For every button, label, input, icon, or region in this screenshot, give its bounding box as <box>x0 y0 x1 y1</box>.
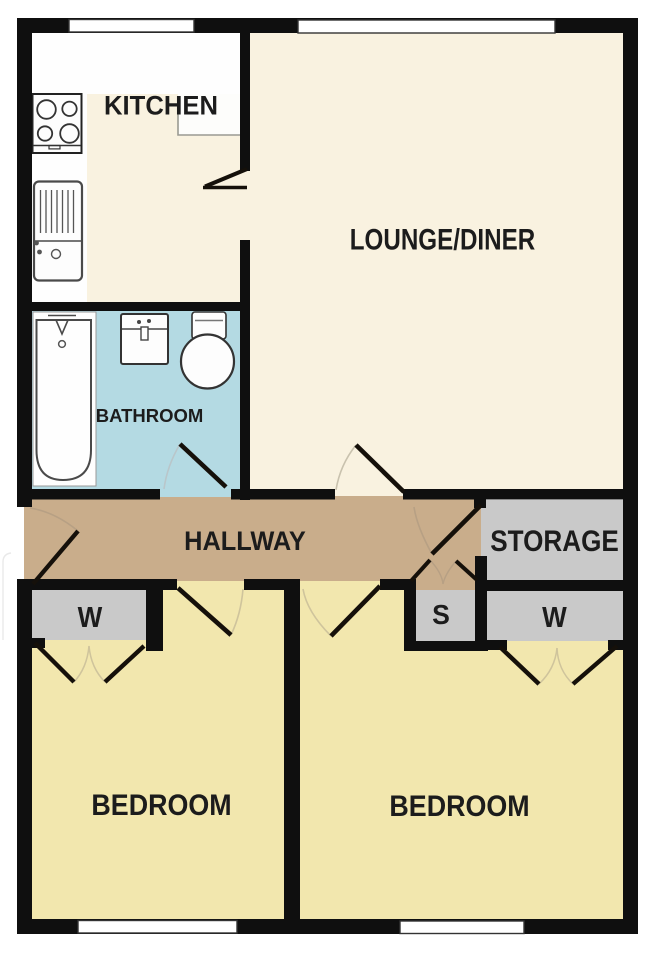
svg-text:BEDROOM: BEDROOM <box>389 790 529 824</box>
svg-text:BATHROOM: BATHROOM <box>96 405 204 426</box>
svg-text:BEDROOM: BEDROOM <box>91 789 231 823</box>
svg-text:W: W <box>78 601 103 634</box>
svg-text:LOUNGE/DINER: LOUNGE/DINER <box>350 223 535 256</box>
svg-text:STORAGE: STORAGE <box>490 524 619 557</box>
svg-text:W: W <box>542 601 567 634</box>
svg-text:HALLWAY: HALLWAY <box>184 525 306 556</box>
svg-text:KITCHEN: KITCHEN <box>104 90 218 121</box>
svg-text:S: S <box>432 598 450 630</box>
